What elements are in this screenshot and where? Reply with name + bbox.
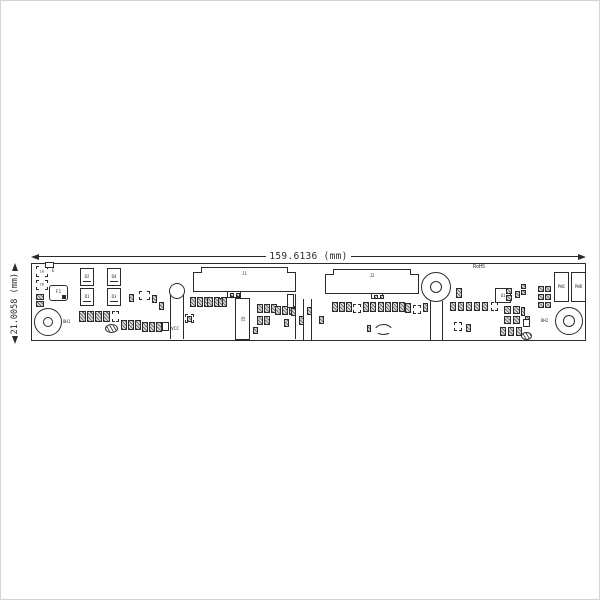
pad-11 <box>319 316 324 324</box>
corner-mark <box>36 266 39 269</box>
pad-1 <box>129 294 134 302</box>
padcol-1-1 <box>506 295 512 301</box>
pad-2 <box>152 295 157 303</box>
diode-D3: D3 <box>107 288 121 306</box>
ref-label: D1 <box>81 295 93 299</box>
res-row-1-2 <box>95 311 102 322</box>
pad-4 <box>187 316 192 322</box>
bead-2 <box>521 332 532 340</box>
fuse-F1-mark <box>62 295 66 299</box>
pcb-dimension-drawing: 159.6136 (mm) 21.0058 (mm) L6EC6F1BH1D2D… <box>0 0 600 600</box>
grid-row-2-0 <box>504 316 511 324</box>
diode-D1: D1 <box>80 288 94 306</box>
corner-mark <box>413 311 416 314</box>
hole-BH2-inner <box>563 315 575 327</box>
silk-rect-1 <box>287 294 294 308</box>
rohs-text: RoHS <box>473 265 485 270</box>
grid-row-3-1 <box>545 286 551 292</box>
corner-mark <box>418 311 421 314</box>
grid-row-5-1 <box>545 302 551 308</box>
res-row-9-2 <box>346 302 352 312</box>
res-row-3-0 <box>142 322 148 332</box>
connector-J1: J1 <box>193 267 296 292</box>
grid-row-2-1 <box>513 316 520 324</box>
hole-mid <box>421 272 451 302</box>
res-row-12-4 <box>482 302 488 311</box>
diode-D2: D2 <box>80 268 94 286</box>
res-row-12-2 <box>466 302 472 311</box>
diode-D4-band <box>110 281 117 282</box>
jumper-arcs-gap1 <box>375 328 379 333</box>
connector-PWC: PWC <box>554 272 569 302</box>
ref-bracket-b2 <box>413 305 421 314</box>
ref-bracket-C6: C6 <box>36 280 48 290</box>
hole-BH2-label: BH2 <box>541 319 548 323</box>
res-row-8-0 <box>275 306 281 315</box>
res-row-10-0 <box>363 302 369 312</box>
res-row-5-0 <box>207 297 213 307</box>
connector-J2-tab <box>371 293 383 299</box>
connector-J2-tab-p1 <box>374 295 378 299</box>
mid-leg-2 <box>442 301 443 340</box>
ref-bracket-b3 <box>491 302 498 311</box>
pad-3 <box>159 302 164 310</box>
corner-mark <box>358 304 361 307</box>
hole-BH1-inner <box>43 317 53 327</box>
res-row-1-0 <box>79 311 86 322</box>
pad-14 <box>367 325 371 332</box>
grid-row-4-1 <box>545 294 551 300</box>
ref-bracket-r1 <box>112 311 119 322</box>
connector-J1-tab-p1 <box>230 293 234 297</box>
corner-mark <box>116 311 119 314</box>
corner-mark <box>45 274 48 277</box>
res-row-12-1 <box>458 302 464 311</box>
ref-label: C6 <box>36 283 48 287</box>
ref-label: PWD <box>572 285 585 289</box>
connector-J2: J2 <box>325 269 419 294</box>
res-row-4-1 <box>197 297 203 307</box>
connector-J2-tab-p2 <box>380 295 384 299</box>
corner-mark <box>491 308 494 311</box>
ic-U2: U2 <box>235 298 250 340</box>
res-row-6-1 <box>264 304 270 313</box>
res-row-3-1 <box>149 322 155 332</box>
res-row-13-0 <box>500 327 506 336</box>
grid-row-1-0 <box>504 306 511 314</box>
silk-line-1 <box>295 294 296 339</box>
res-row-6-0 <box>257 304 263 313</box>
corner-mark <box>459 322 462 325</box>
pad-19 <box>521 307 525 316</box>
res-row-11-2 <box>392 302 398 312</box>
padcol-2-1 <box>521 290 526 295</box>
pad-12 <box>405 303 411 313</box>
corner-mark <box>147 297 150 300</box>
ref-bracket-C5 <box>139 291 150 300</box>
grid-row-3-0 <box>538 286 544 292</box>
ref-label: D4 <box>108 275 120 279</box>
res-row-11-0 <box>378 302 384 312</box>
connector-PWD: PWD <box>571 272 586 302</box>
res-row-2-0 <box>121 320 127 330</box>
diode-D4: D4 <box>107 268 121 286</box>
corner-mark <box>454 328 457 331</box>
cap-pads-1 <box>36 301 44 307</box>
corner-mark <box>112 319 115 322</box>
connector-J1-tab-p2 <box>236 293 240 297</box>
pad-8 <box>253 327 258 334</box>
pad-9 <box>299 316 304 325</box>
diode-D2-band <box>83 281 90 282</box>
component-layer: L6EC6F1BH1D2D1D4D3VCCJ1U2J2RoHSU1BH2PWCP… <box>1 1 600 600</box>
res-row-4-0 <box>190 297 196 307</box>
cap-pads-0 <box>36 294 44 300</box>
res-row-12-0 <box>450 302 456 311</box>
diode-D3-band <box>110 301 117 302</box>
sq-comp-1 <box>162 322 169 331</box>
corner-mark <box>36 287 39 290</box>
hole-mid-inner <box>430 281 442 293</box>
padcol-2-0 <box>521 284 526 289</box>
res-row-1-1 <box>87 311 94 322</box>
fuse-F1: F1 <box>49 285 68 301</box>
padcol-1-0 <box>506 288 512 294</box>
testpost-VCC-label: VCC <box>171 328 179 333</box>
corner-mark <box>45 287 48 290</box>
corner-mark <box>454 322 457 325</box>
testpost-VCC-leg2 <box>183 293 184 339</box>
testpost-VCC <box>169 283 185 299</box>
corner-mark <box>418 305 421 308</box>
corner-mark <box>353 310 356 313</box>
res-row-10-1 <box>370 302 376 312</box>
corner-mark <box>413 305 416 308</box>
res-row-13-1 <box>508 327 514 336</box>
res-row-2-1 <box>128 320 134 330</box>
res-row-12-3 <box>474 302 480 311</box>
pad-15 <box>456 288 462 298</box>
silk-line-3 <box>311 299 312 340</box>
bead-1 <box>105 324 118 333</box>
corner-mark <box>459 328 462 331</box>
pad-10 <box>307 307 312 315</box>
corner-mark <box>491 302 494 305</box>
ref-label: D3 <box>108 295 120 299</box>
corner-mark <box>36 274 39 277</box>
corner-mark <box>116 319 119 322</box>
ref-label: PWC <box>555 285 568 289</box>
ref-text-E: E <box>52 269 54 273</box>
pad-17 <box>515 291 520 298</box>
corner-mark <box>139 291 142 294</box>
pad-7 <box>284 319 289 327</box>
ref-label: J2 <box>325 274 419 278</box>
jumper-arcs <box>375 324 392 335</box>
grid-row-1-1 <box>513 306 520 314</box>
res-row-2-2 <box>135 320 141 330</box>
res-row-9-0 <box>332 302 338 312</box>
hole-BH1 <box>34 308 62 336</box>
ref-label: D2 <box>81 275 93 279</box>
pad-5 <box>218 298 223 307</box>
diode-D1-band <box>83 301 90 302</box>
ref-bracket-b4 <box>454 322 462 331</box>
ref-label: U2 <box>241 317 245 322</box>
connector-J1-tab <box>227 291 241 298</box>
pad-16 <box>466 324 471 332</box>
pad-13 <box>423 303 428 312</box>
res-row-7-0 <box>257 316 263 325</box>
hole-BH1-label: BH1 <box>63 320 70 324</box>
res-row-11-1 <box>385 302 391 312</box>
res-row-1-3 <box>103 311 110 322</box>
ref-bracket-b1 <box>353 304 361 313</box>
mid-leg-1 <box>430 301 431 340</box>
corner-mark <box>139 297 142 300</box>
sq-comp-2 <box>523 319 530 327</box>
hole-BH2 <box>555 307 583 335</box>
corner-mark <box>353 304 356 307</box>
ref-label: J1 <box>193 272 296 276</box>
grid-row-5-0 <box>538 302 544 308</box>
corner-mark <box>112 311 115 314</box>
res-row-7-1 <box>264 316 270 325</box>
jumper-arcs-gap2 <box>388 328 392 333</box>
corner-mark <box>495 308 498 311</box>
res-row-9-1 <box>339 302 345 312</box>
ref-label: L6 <box>36 270 48 274</box>
corner-mark <box>147 291 150 294</box>
corner-mark <box>358 310 361 313</box>
grid-row-4-0 <box>538 294 544 300</box>
